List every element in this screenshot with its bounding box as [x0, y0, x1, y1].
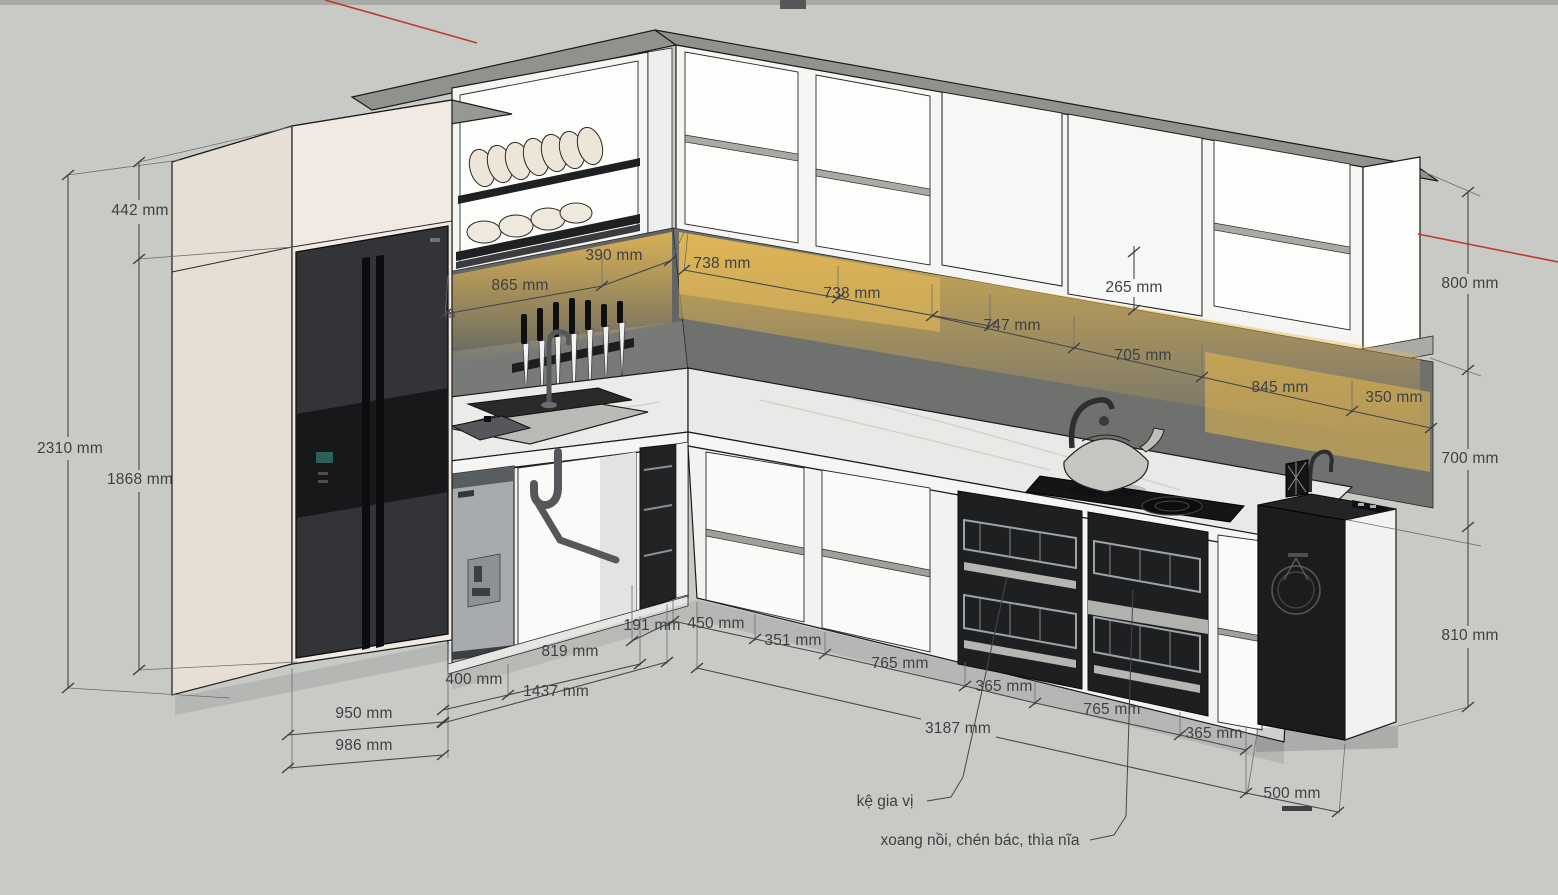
- dim-label-865: 865 mm: [491, 277, 548, 294]
- dim-label-500: 500 mm: [1263, 785, 1320, 802]
- dim-label-2310: 2310 mm: [37, 440, 103, 457]
- note-spice-rack: kệ gia vị: [857, 793, 914, 810]
- dim-label-450: 450 mm: [687, 615, 744, 632]
- dim-label-738-a: 738 mm: [693, 255, 750, 272]
- dim-label-765-a: 765 mm: [871, 655, 928, 672]
- dim-label-350: 350 mm: [1365, 389, 1422, 406]
- kitchen-scene-canvas: 442 mm 2310 mm 1868 mm 865 mm 390 mm 738…: [0, 0, 1558, 895]
- dim-label-705: 705 mm: [1114, 347, 1171, 364]
- dim-label-442: 442 mm: [111, 202, 168, 219]
- dim-label-819: 819 mm: [541, 643, 598, 660]
- dim-label-1437: 1437 mm: [523, 683, 589, 700]
- dim-label-3187: 3187 mm: [925, 720, 991, 737]
- dim-label-738-b: 738 mm: [823, 285, 880, 302]
- dim-label-810: 810 mm: [1441, 627, 1498, 644]
- note-pots-pans: xoang nồi, chén bác, thìa nĩa: [880, 832, 1079, 849]
- dim-label-986: 986 mm: [335, 737, 392, 754]
- pots-pans-pullout: [1088, 512, 1208, 716]
- kitchen-3d-render: 442 mm 2310 mm 1868 mm 865 mm 390 mm 738…: [0, 0, 1558, 895]
- corner-pullout-unit: [640, 442, 688, 610]
- dim-label-1868: 1868 mm: [107, 471, 173, 488]
- dim-label-765-b: 765 mm: [1083, 701, 1140, 718]
- dim-label-747: 747 mm: [983, 317, 1040, 334]
- dim-label-191: 191 mm: [623, 617, 680, 634]
- dim-label-700: 700 mm: [1441, 450, 1498, 467]
- dim-label-351: 351 mm: [764, 632, 821, 649]
- dim-label-365-a: 365 mm: [975, 678, 1032, 695]
- dim-label-800: 800 mm: [1441, 275, 1498, 292]
- dim-label-365-b: 365 mm: [1185, 725, 1242, 742]
- purifier-cup: [1286, 460, 1308, 497]
- spice-rack-pullout: [958, 491, 1082, 689]
- dim-label-950: 950 mm: [335, 705, 392, 722]
- dishwasher: [452, 466, 514, 670]
- dim-label-265: 265 mm: [1105, 279, 1162, 296]
- dim-label-partial-m: m: [445, 306, 456, 321]
- fridge: [296, 226, 448, 658]
- dim-label-390: 390 mm: [585, 247, 642, 264]
- dim-label-845: 845 mm: [1251, 379, 1308, 396]
- dim-label-400: 400 mm: [445, 671, 502, 688]
- fridge-display: [316, 452, 333, 463]
